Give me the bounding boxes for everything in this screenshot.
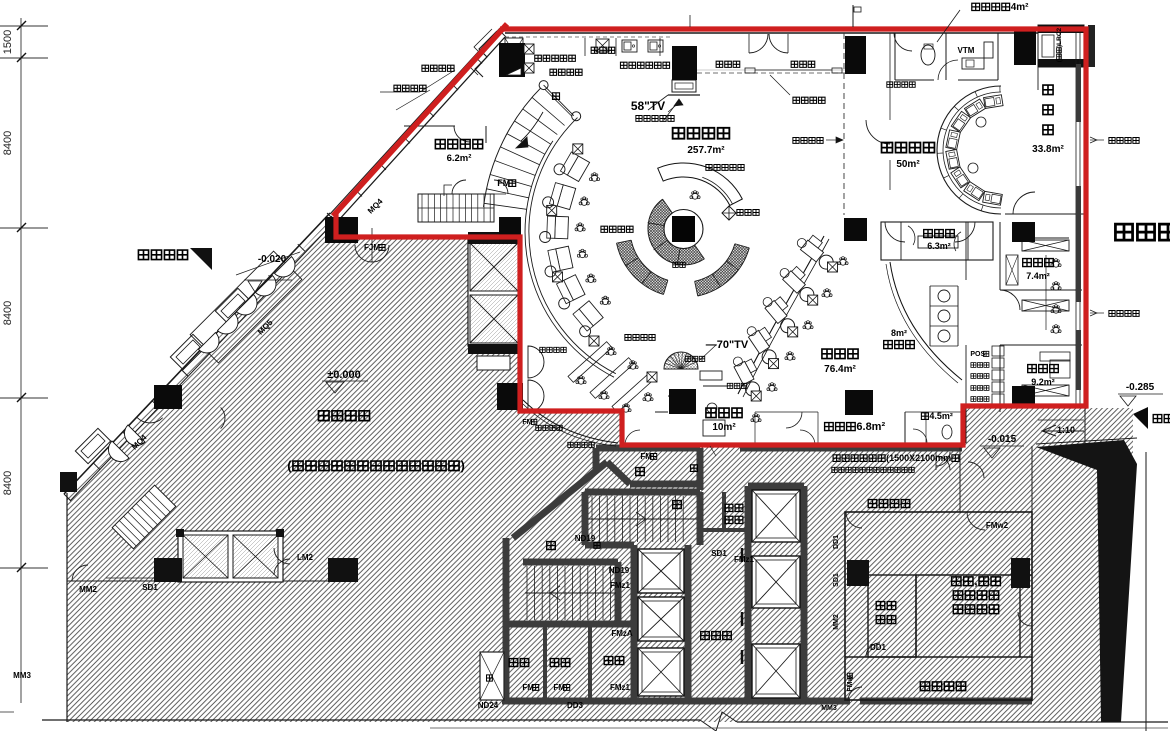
svg-text:,: , [974,574,977,588]
svg-text:-0.020: -0.020 [258,254,287,265]
svg-text:9.2m²: 9.2m² [1031,377,1055,387]
svg-text:1:10: 1:10 [1057,425,1075,435]
svg-text:ND24: ND24 [478,701,499,710]
svg-text:)LRC2: )LRC2 [1056,27,1063,47]
svg-text:±0.000: ±0.000 [327,369,361,381]
svg-text:FJM: FJM [364,243,380,252]
svg-text:-0.285: -0.285 [1126,382,1155,393]
svg-text:4.5m²: 4.5m² [929,411,953,421]
svg-text:): ) [461,458,465,473]
svg-text:MM2: MM2 [79,585,97,594]
svg-text:DD1: DD1 [833,535,840,549]
svg-text:(: ( [287,458,292,473]
svg-text:SD1: SD1 [711,549,727,558]
svg-text:-0.015: -0.015 [988,434,1017,445]
svg-text:FMz1: FMz1 [734,555,755,564]
svg-text:257.7m²: 257.7m² [687,145,725,156]
svg-text:MM3: MM3 [13,671,31,680]
svg-text:MM2: MM2 [833,614,840,630]
svg-text:1500: 1500 [2,30,14,54]
svg-text:8400: 8400 [2,131,14,155]
svg-text:ND19: ND19 [575,534,596,543]
svg-text:FMz1: FMz1 [610,581,631,590]
svg-text:DD3: DD3 [567,701,584,710]
svg-text:50m²: 50m² [896,159,920,170]
svg-text:10m²: 10m² [712,422,736,433]
svg-text:8400: 8400 [2,471,14,495]
svg-text:VTM: VTM [958,46,975,55]
svg-text:FMw: FMw [847,675,854,691]
svg-text:—70"TV: —70"TV [706,339,749,351]
svg-text:58"TV: 58"TV [631,99,665,113]
svg-text:SD1: SD1 [833,573,840,587]
svg-text:DD1: DD1 [870,643,887,652]
svg-text:6.8m²: 6.8m² [856,421,885,433]
svg-text:FMzA: FMzA [611,629,633,638]
svg-text:8400: 8400 [2,301,14,325]
svg-text:FMz1: FMz1 [610,683,631,692]
svg-text:LM2: LM2 [297,553,314,562]
svg-text:FMw2: FMw2 [986,521,1009,530]
svg-text:ND19: ND19 [609,566,630,575]
svg-text:MM3: MM3 [821,705,837,712]
svg-text:76.4m²: 76.4m² [824,364,856,375]
svg-text:4m²: 4m² [1011,2,1029,13]
svg-text:8m²: 8m² [891,328,907,338]
svg-text:(1500X2100mm: (1500X2100mm [886,453,951,463]
svg-text:SD1: SD1 [142,583,158,592]
svg-text:6.3m²: 6.3m² [927,241,951,251]
svg-text:7.4m²: 7.4m² [1026,271,1050,281]
svg-text:6.2m²: 6.2m² [447,153,472,164]
svg-text:33.8m²: 33.8m² [1032,144,1064,155]
